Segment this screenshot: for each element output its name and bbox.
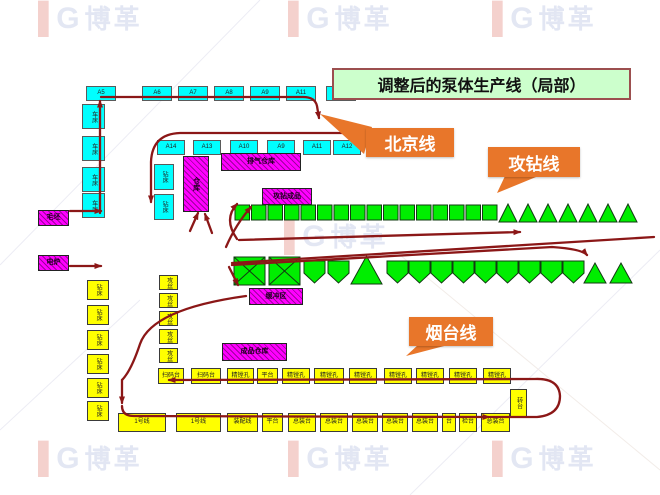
boge-watermark-text: 博革 [85,6,143,32]
yellow-station-row-bottom: 总装台 [412,413,438,432]
yellow-station-row-top: 精镗孔 [314,368,344,384]
yellow-station-row-bottom: 总装台 [481,413,510,432]
yellow-station-row-top: 精镗孔 [483,368,511,384]
yellow-station-row-bottom: 1号线 [118,413,166,432]
yellow-station-row-top: 平台 [257,368,278,384]
yellow-station-left-col: 钻床 [87,305,109,325]
boge-watermark-text: 博革 [539,6,597,32]
flow-cross-square-diagonal [269,257,300,285]
flow-cross-square-row2 [234,257,265,285]
yellow-station-row-bottom: 1号线 [176,413,221,432]
boge-watermark-text: 博革 [335,6,393,32]
boge-logo-icon: ▌G [288,444,330,474]
drill-callout-tail [497,176,536,193]
flow-pentagon-row2 [304,261,325,283]
boge-watermark: ▌G博革 [38,4,143,34]
yellow-station-left-col: 钻床 [87,354,109,374]
boge-logo-icon: ▌G [288,4,330,34]
arrow-uturn-return [169,379,560,417]
cyan-machine-left-col: 车床 [82,104,105,129]
flow-square-row1 [285,205,300,220]
yellow-station-row-top: 精镗孔 [384,368,412,384]
yellow-station-inner-col: 攻丝 [159,329,178,344]
boge-logo-icon: ▌G [284,222,326,252]
flow-pentagon-row2 [387,261,408,283]
flow-square-row1 [334,205,349,220]
flow-square-row1 [268,205,283,220]
flow-triangle-row1 [579,204,597,222]
flow-cross-square-diagonal [234,257,265,285]
flow-cross-square-row2 [269,257,300,285]
flow-big-triangle-row2 [351,256,382,284]
cyan-machine-mid-col: 钻床 [154,164,174,190]
yellow-station-left-col: 钻床 [87,330,109,350]
flow-cross-square-diagonal [234,257,265,285]
flow-triangle-row1 [519,204,537,222]
flow-square-row1 [483,205,498,220]
yellow-station-inner-col: 攻丝 [159,311,178,326]
storage-rack-vertical: 仓库 [183,156,209,212]
yellow-station-row-bottom: 总装台 [382,413,408,432]
yellow-station-row-bottom: 总装台 [320,413,348,432]
cyan-machine-row1: A8 [214,86,244,101]
boge-watermark: ▌G博革 [492,444,597,474]
cyan-machine-left-col: 车床 [82,136,105,161]
flow-triangle-row2-end [610,263,632,283]
boge-logo-icon: ▌G [492,4,534,34]
arrow-to-rack-1 [190,213,198,231]
cyan-machine-row2: A10 [230,140,258,155]
yellow-station-row-bottom: 平台 [262,413,283,432]
storage-finished: 成品仓库 [222,343,287,361]
flow-pentagon-row2 [431,261,452,283]
flow-triangle-row1 [539,204,557,222]
yellow-station-row-bottom: 检台 [459,413,477,432]
storage-drill-products: 攻钻成品 [262,188,312,205]
cyan-machine-row2: A11 [303,140,331,155]
arrow-row1-curve [230,204,237,239]
yellow-station-row-bottom: 总装台 [288,413,316,432]
flow-pentagon-row2 [453,261,474,283]
cyan-machine-left-col: 车床 [82,193,105,218]
yellow-station-row-top: 精镗孔 [416,368,444,384]
cyan-machine-row2: A12 [333,140,361,155]
flow-triangle-row1 [619,204,637,222]
arrow-bottom-run [122,406,489,417]
yellow-station-row-top: 精镗孔 [349,368,377,384]
flow-square-row1 [252,205,267,220]
cyan-machine-row1: A11 [286,86,316,101]
beijing-line-label: 北京线 [366,128,454,157]
yellow-station-row-top: 精镗孔 [282,368,310,384]
cyan-machine-row2: A9 [267,140,295,155]
flow-square-row1 [400,205,415,220]
storage-blank: 毛坯 [38,210,69,226]
cyan-machine-left-col: 车床 [82,167,105,192]
storage-buffer: 缓冲区 [249,288,303,305]
yellow-turn-station: 转台 [510,389,527,417]
yellow-station-row-top: 扫码台 [191,368,221,384]
yellow-station-inner-col: 攻丝 [159,348,178,363]
yellow-station-left-col: 钻床 [87,280,109,300]
boge-watermark: ▌G博革 [284,222,389,252]
yantai-line-label: 烟台线 [409,317,493,346]
flow-square-row1 [466,205,481,220]
cyan-machine-row2: A14 [157,140,185,155]
yellow-station-row-bottom: 总装台 [352,413,378,432]
storage-furnace: 电炉 [38,255,69,271]
arrow-row2-return [151,133,362,202]
arrow-to-buffer [229,267,238,285]
beijing-callout-tail [320,114,372,154]
yellow-station-inner-col: 攻丝 [159,293,178,308]
storage-exhaust: 排气仓库 [221,153,301,171]
yellow-station-row-bottom: 装配线 [227,413,258,432]
cyan-machine-row1: A5 [86,86,116,101]
yellow-station-inner-col: 攻丝 [159,275,178,290]
flow-triangle-row1 [559,204,577,222]
arrow-to-rack-2 [205,214,212,233]
cyan-machine-row2: A13 [193,140,221,155]
cyan-machine-row1: A6 [142,86,172,101]
yellow-station-left-col: 钻床 [87,401,109,421]
drill-line-label: 攻钻线 [488,147,580,177]
yellow-station-row-bottom: 台 [442,413,456,432]
boge-watermark: ▌G博革 [288,444,393,474]
boge-watermark-text: 博革 [331,224,389,250]
boge-watermark-text: 博革 [85,446,143,472]
flow-cross-square-diagonal [269,257,300,285]
flow-square-row1 [384,205,399,220]
yellow-station-row-top: 精镗孔 [227,368,254,384]
flow-pentagon-row2 [409,261,430,283]
flow-square-row1 [301,205,316,220]
diagram-title: 调整后的泵体生产线（局部） [332,68,631,100]
flow-square-row1 [351,205,366,220]
flow-square-row1 [367,205,382,220]
arrow-top-to-beijing [101,97,319,118]
flow-pentagon-row2 [475,261,496,283]
flow-pentagon-row2 [541,261,562,283]
factory-layout-page: ▌G博革▌G博革▌G博革▌G博革▌G博革▌G博革▌G博革 A5A6A7A8A9A… [0,0,660,495]
arrow-to-products [226,207,251,247]
flow-square-row1 [433,205,448,220]
boge-watermark: ▌G博革 [492,4,597,34]
cyan-machine-row1: A7 [178,86,208,101]
arrow-big-sweep [122,296,246,403]
flow-square-row1 [450,205,465,220]
flow-pentagon-row2 [519,261,540,283]
cyan-machine-mid-col: 钻床 [154,194,174,220]
boge-watermark: ▌G博革 [38,444,143,474]
yellow-station-row-top: 扫码台 [158,368,184,384]
boge-watermark: ▌G博革 [288,4,393,34]
flow-square-row1 [417,205,432,220]
flow-pentagon-row2 [497,261,518,283]
flow-triangle-row1 [599,204,617,222]
flow-triangle-row1 [499,204,517,222]
flow-square-row1 [318,205,333,220]
flow-pentagon-row2 [563,261,584,283]
flow-square-row1 [235,205,250,220]
boge-logo-icon: ▌G [492,444,534,474]
flow-pentagon-row2 [328,261,349,283]
boge-watermark-text: 博革 [335,446,393,472]
yellow-station-row-top: 精镗孔 [449,368,477,384]
boge-logo-icon: ▌G [38,4,80,34]
boge-watermark-text: 博革 [539,446,597,472]
cyan-machine-row1: A9 [250,86,280,101]
flow-triangle-row2-end [584,263,606,283]
boge-logo-icon: ▌G [38,444,80,474]
yellow-station-left-col: 钻床 [87,378,109,398]
